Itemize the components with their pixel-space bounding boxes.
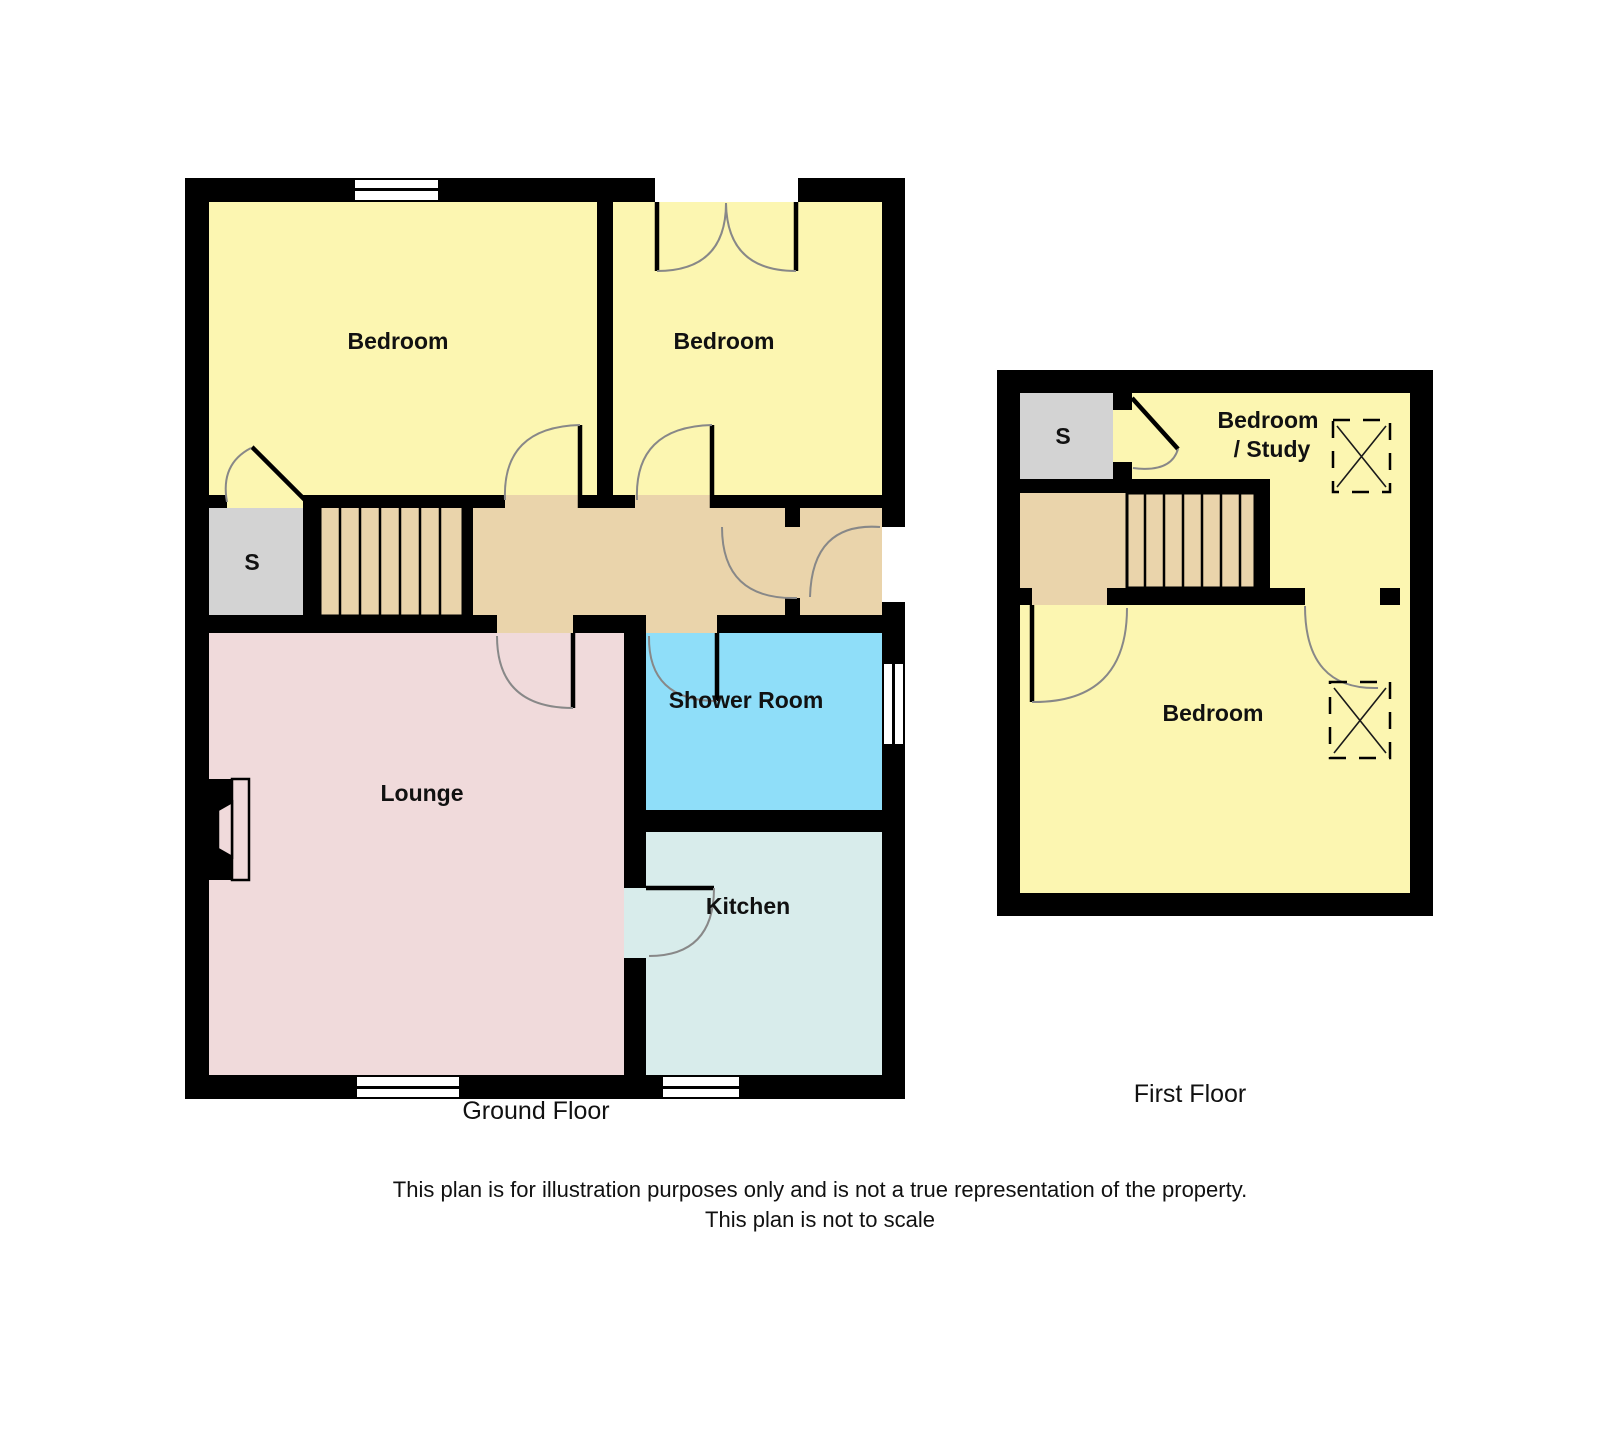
room-kitchen [624, 810, 882, 1075]
label-shower-room: Shower Room [669, 687, 824, 713]
storage-door-gap [227, 495, 305, 508]
first-floor-plan: S Bedroom / Study Bedroom [997, 370, 1433, 916]
caption-first-floor: First Floor [1134, 1080, 1247, 1108]
label-bedroom-left: Bedroom [348, 328, 449, 354]
label-lounge: Lounge [380, 780, 463, 806]
label-bedroom-study-line1: Bedroom [1218, 407, 1319, 433]
disclaimer-line1: This plan is for illustration purposes o… [393, 1177, 1247, 1202]
label-kitchen: Kitchen [706, 893, 790, 919]
landing-door-gap [1032, 588, 1107, 605]
floor-plan-page: Bedroom Bedroom S Lounge Shower Room Kit… [0, 0, 1617, 1432]
window-right-shower [884, 664, 903, 744]
caption-ground-floor: Ground Floor [462, 1097, 609, 1125]
window-top-bedroom [355, 180, 438, 200]
label-storage-first: S [1055, 423, 1070, 449]
ground-floor-plan: Bedroom Bedroom S Lounge Shower Room Kit… [185, 178, 905, 1099]
label-bedroom-first: Bedroom [1163, 700, 1264, 726]
label-bedroom-right: Bedroom [674, 328, 775, 354]
disclaimer-line2: This plan is not to scale [705, 1207, 935, 1232]
label-storage-ground: S [244, 549, 259, 575]
window-bottom-lounge [357, 1077, 459, 1097]
label-bedroom-study-line2: / Study [1234, 436, 1311, 462]
stairs-first-floor [1127, 493, 1255, 588]
fireplace [209, 779, 249, 880]
room-shower [624, 633, 882, 810]
room-lounge [209, 633, 646, 1075]
window-bottom-kitchen [663, 1077, 739, 1097]
floor-plan-drawing: Bedroom Bedroom S Lounge Shower Room Kit… [0, 0, 1617, 1432]
stairs-ground-floor [320, 506, 473, 616]
